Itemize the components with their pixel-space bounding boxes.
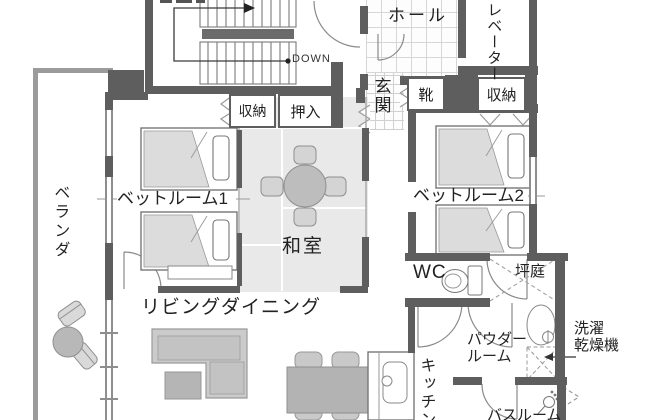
storage-left-box: 収納 — [229, 94, 276, 128]
window-tick — [100, 332, 118, 334]
wall — [105, 243, 113, 301]
wall — [408, 212, 416, 258]
wall — [453, 377, 482, 385]
powder-room-label-line2: ルーム — [467, 348, 527, 365]
wall — [529, 110, 537, 158]
veranda-label: ベランダ — [50, 184, 68, 274]
elevator-label: エレベーター — [485, 0, 502, 81]
bed-bench-icon — [168, 266, 232, 279]
wall — [356, 88, 365, 103]
corridor-door-arc — [418, 303, 462, 347]
floor-plan: 収納 押入 靴 収納 ホール エレベーター 玄関 ベットルーム1 ベットルーム2… — [0, 0, 650, 420]
wall — [529, 0, 537, 73]
wall — [408, 110, 416, 182]
wall — [340, 286, 368, 293]
wall — [360, 6, 368, 34]
bathroom-label: バスルーム — [487, 407, 562, 420]
wall — [405, 298, 490, 307]
shoes-box: 靴 — [407, 77, 445, 111]
stair-landing — [202, 29, 294, 39]
storage-door-icon — [480, 114, 500, 125]
kitchen-label: キッチン — [416, 357, 434, 420]
wall — [332, 92, 343, 128]
hall-entrance-door-arc — [378, 34, 404, 60]
shoes-label: 靴 — [418, 84, 433, 105]
wc-label: WC — [413, 262, 447, 284]
wall — [408, 303, 415, 353]
wall — [105, 155, 113, 178]
kitchen-faucet-icon — [382, 376, 392, 386]
japanese-room-label: 和室 — [282, 236, 324, 258]
courtyard-label: 坪庭 — [515, 263, 545, 280]
wall — [405, 253, 490, 261]
powder-room-label-line1: パウダー — [467, 331, 527, 348]
wall — [108, 70, 144, 98]
laundry-label-line1: 洗濯 — [574, 320, 619, 337]
wall — [145, 86, 343, 94]
window-tick — [100, 398, 118, 400]
coffee-table-icon — [165, 372, 201, 399]
powder-room-label: パウダー ルーム — [467, 331, 527, 366]
wall — [458, 0, 466, 58]
entrance-label: 玄関 — [371, 77, 391, 129]
wall — [362, 237, 369, 287]
dining-table-icon — [287, 352, 371, 420]
veranda-table-icon — [53, 299, 99, 371]
window — [105, 110, 113, 156]
wall — [158, 286, 240, 293]
bed-icon-2b — [436, 205, 532, 255]
washer-dryer-icon — [527, 347, 558, 380]
oshiire-label: 押入 — [290, 101, 320, 122]
window — [529, 157, 537, 204]
staircase-icon — [200, 0, 296, 84]
wall — [237, 130, 242, 188]
japanese-room-table-icon — [261, 146, 346, 226]
oshiire-box: 押入 — [278, 94, 333, 128]
bed-icon-1a — [141, 128, 237, 190]
wall — [331, 62, 343, 88]
clipped-label-fragment — [176, 0, 192, 3]
storage-left-label: 収納 — [239, 101, 267, 121]
wall — [515, 377, 567, 385]
window — [105, 300, 113, 420]
stairs-down-label: DOWN — [292, 53, 331, 66]
kitchen-counter-icon — [368, 352, 414, 420]
clipped-label-fragment — [160, 0, 172, 3]
hall-label: ホール — [388, 6, 448, 26]
wall — [362, 128, 369, 181]
toilet-icon — [442, 266, 482, 295]
window-tick — [100, 366, 118, 368]
storage-right-box: 収納 — [477, 77, 526, 112]
bed-icon-1b — [141, 212, 237, 279]
window — [105, 177, 113, 243]
storage-right-label: 収納 — [486, 84, 516, 105]
powder-sink-icon — [527, 305, 555, 345]
wall — [555, 253, 565, 385]
wall — [237, 233, 242, 286]
laundry-label: 洗濯 乾燥機 — [574, 320, 619, 355]
wall — [529, 203, 537, 254]
living-dining-label: リビングダイニング — [141, 297, 321, 319]
bedroom1-label: ベットルーム1 — [117, 189, 228, 209]
laundry-label-line2: 乾燥機 — [574, 337, 619, 354]
clipped-label-fragment — [196, 0, 205, 3]
wall — [145, 0, 153, 93]
stair-room-door-arc — [314, 1, 360, 47]
bed-icon-2a — [436, 126, 532, 188]
bedroom2-label: ベットルーム2 — [413, 186, 524, 206]
